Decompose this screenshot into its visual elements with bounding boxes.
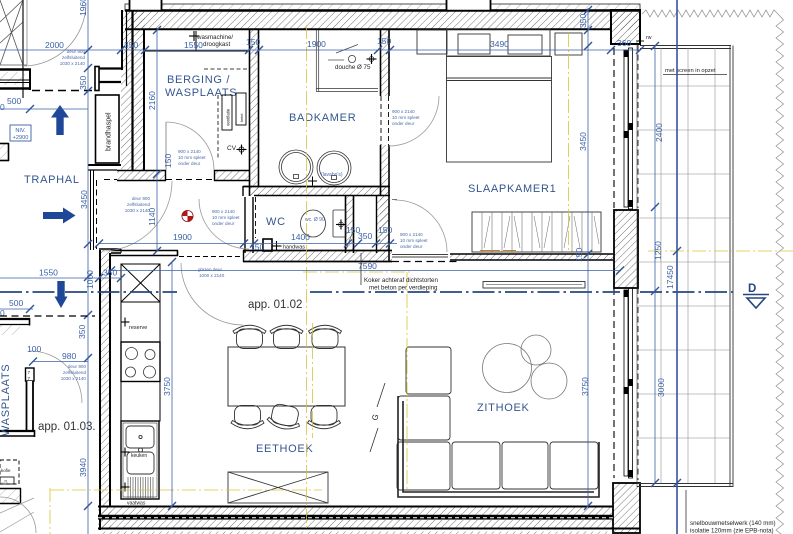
svg-text:100: 100 bbox=[27, 344, 41, 354]
svg-text:350: 350 bbox=[124, 40, 138, 50]
svg-text:ZITHOEK: ZITHOEK bbox=[477, 402, 530, 414]
svg-text:EETHOEK: EETHOEK bbox=[256, 443, 313, 455]
svg-text:snelbouwmetselwerk (140 mm): snelbouwmetselwerk (140 mm) bbox=[690, 520, 776, 527]
svg-text:zelfsluitend: zelfsluitend bbox=[127, 202, 150, 207]
svg-text:1250: 1250 bbox=[653, 241, 663, 260]
svg-text:keuken: keuken bbox=[131, 453, 147, 459]
svg-text:WASPLAATS: WASPLAATS bbox=[165, 87, 237, 99]
svg-text:3450: 3450 bbox=[578, 132, 588, 151]
svg-text:zelfsluitend: zelfsluitend bbox=[62, 55, 85, 60]
svg-text:350: 350 bbox=[358, 231, 372, 241]
svg-text:+2900: +2900 bbox=[13, 135, 29, 141]
svg-text:droogkast: droogkast bbox=[203, 41, 230, 48]
svg-text:150: 150 bbox=[250, 242, 264, 252]
svg-text:3750: 3750 bbox=[580, 377, 590, 396]
svg-text:10 mm spleet: 10 mm spleet bbox=[178, 155, 206, 160]
svg-text:onder deur: onder deur bbox=[178, 161, 201, 166]
svg-text:900 x 2140: 900 x 2140 bbox=[212, 209, 235, 214]
svg-text:onder deur: onder deur bbox=[212, 221, 235, 226]
svg-text:3750: 3750 bbox=[162, 377, 172, 396]
svg-text:3450: 3450 bbox=[79, 190, 89, 209]
svg-text:zelfsluitend: zelfsluitend bbox=[63, 370, 86, 375]
svg-text:1900: 1900 bbox=[173, 232, 192, 242]
svg-text:wasmachine/: wasmachine/ bbox=[196, 34, 233, 41]
svg-text:deur 900: deur 900 bbox=[67, 49, 86, 54]
svg-text:0: 0 bbox=[0, 102, 5, 112]
svg-text:deur 900: deur 900 bbox=[68, 364, 87, 369]
svg-text:rw: rw bbox=[646, 35, 652, 41]
svg-text:150: 150 bbox=[574, 248, 584, 262]
svg-text:isolatie 120mm (zie EPB-nota): isolatie 120mm (zie EPB-nota) bbox=[690, 528, 774, 534]
svg-text:onder deur: onder deur bbox=[400, 244, 423, 249]
svg-text:1550: 1550 bbox=[39, 268, 58, 278]
svg-text:app. 01.03.: app. 01.03. bbox=[38, 421, 96, 433]
svg-text:kofie: kofie bbox=[1, 468, 11, 473]
svg-text:ketel: ketel bbox=[239, 113, 244, 122]
svg-text:TRAPHAL: TRAPHAL bbox=[24, 174, 80, 186]
svg-text:150: 150 bbox=[377, 36, 391, 46]
svg-text:BADKAMER: BADKAMER bbox=[289, 112, 356, 124]
svg-text:900 x 2140: 900 x 2140 bbox=[400, 232, 423, 237]
svg-text:met screen in opzet: met screen in opzet bbox=[665, 68, 716, 74]
svg-text:150: 150 bbox=[163, 154, 173, 168]
svg-text:SLAAPKAMER1: SLAAPKAMER1 bbox=[468, 183, 556, 195]
svg-text:ventilatie: ventilatie bbox=[226, 108, 231, 126]
svg-text:360: 360 bbox=[617, 38, 631, 48]
svg-text:1030 x 2140: 1030 x 2140 bbox=[61, 376, 87, 381]
svg-text:2000: 2000 bbox=[45, 40, 64, 50]
svg-text:980: 980 bbox=[62, 351, 76, 361]
svg-text:WASPLAATS: WASPLAATS bbox=[0, 364, 12, 436]
svg-text:500: 500 bbox=[9, 298, 23, 308]
svg-text:1030 x 2140: 1030 x 2140 bbox=[60, 61, 86, 66]
svg-text:1000 x 2140: 1000 x 2140 bbox=[199, 273, 225, 278]
svg-text:10 mm spleet: 10 mm spleet bbox=[392, 115, 420, 120]
svg-text:WC: WC bbox=[266, 216, 286, 228]
svg-text:3490: 3490 bbox=[490, 39, 509, 49]
svg-text:1960: 1960 bbox=[78, 0, 88, 16]
svg-text:1900: 1900 bbox=[307, 39, 326, 49]
svg-text:douche Ø 75: douche Ø 75 bbox=[335, 64, 371, 71]
svg-text:reserve: reserve bbox=[129, 325, 147, 331]
svg-text:app. 01.02: app. 01.02 bbox=[248, 299, 302, 311]
svg-text:wc. Ø 90: wc. Ø 90 bbox=[305, 217, 325, 223]
svg-text:2400: 2400 bbox=[654, 123, 664, 142]
svg-text:Koker achteraf dichtstorten: Koker achteraf dichtstorten bbox=[364, 277, 439, 284]
svg-text:1400: 1400 bbox=[291, 232, 310, 242]
svg-text:1550: 1550 bbox=[184, 40, 203, 50]
svg-text:BERGING /: BERGING / bbox=[167, 74, 230, 86]
svg-text:(lavabo's): (lavabo's) bbox=[321, 172, 343, 178]
svg-text:3000: 3000 bbox=[656, 378, 666, 397]
svg-text:onder deur: onder deur bbox=[392, 121, 415, 126]
svg-text:met beton per verdieping: met beton per verdieping bbox=[369, 285, 438, 292]
svg-text:17450: 17450 bbox=[665, 265, 675, 289]
svg-text:D: D bbox=[748, 283, 756, 295]
svg-text:350: 350 bbox=[78, 76, 88, 90]
svg-text:350: 350 bbox=[77, 325, 87, 339]
svg-text:...n.: ...n. bbox=[1, 479, 8, 484]
svg-text:1000: 1000 bbox=[85, 270, 95, 289]
svg-text:glazen deur: glazen deur bbox=[198, 267, 222, 272]
svg-text:NIV.: NIV. bbox=[15, 128, 26, 134]
svg-text:CV: CV bbox=[227, 145, 237, 152]
svg-text:900 x 2140: 900 x 2140 bbox=[392, 109, 415, 114]
svg-text:2160: 2160 bbox=[147, 91, 157, 110]
svg-text:500: 500 bbox=[7, 96, 21, 106]
svg-text:150: 150 bbox=[246, 37, 260, 47]
svg-text:350: 350 bbox=[578, 14, 588, 28]
svg-text:900 x 2140: 900 x 2140 bbox=[178, 149, 201, 154]
svg-text:3940: 3940 bbox=[78, 458, 88, 477]
svg-text:10 mm spleet: 10 mm spleet bbox=[400, 238, 428, 243]
svg-text:150: 150 bbox=[378, 225, 392, 235]
svg-text:vaatwas: vaatwas bbox=[127, 501, 146, 507]
svg-text:350: 350 bbox=[103, 268, 117, 278]
svg-text:10 mm spleet: 10 mm spleet bbox=[212, 215, 240, 220]
svg-text:1030 x 2140: 1030 x 2140 bbox=[125, 208, 151, 213]
svg-text:brandhaspel: brandhaspel bbox=[106, 112, 113, 151]
svg-text:handwas: handwas bbox=[283, 245, 305, 251]
svg-text:deur 900: deur 900 bbox=[132, 196, 151, 201]
